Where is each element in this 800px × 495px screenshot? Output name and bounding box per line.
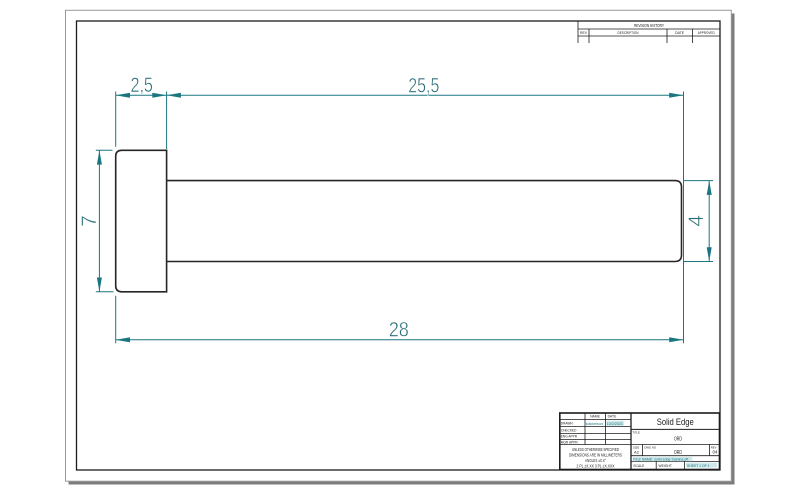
svg-text:kdickerson: kdickerson <box>586 422 603 426</box>
svg-text:ORD: ORD <box>674 450 682 456</box>
svg-text:UNLESS OTHERWISE SPECIFIED: UNLESS OTHERWISE SPECIFIED <box>572 447 619 452</box>
svg-text:DWG NO: DWG NO <box>644 446 657 450</box>
svg-text:A2: A2 <box>634 450 640 455</box>
svg-text:REVISION HISTORY: REVISION HISTORY <box>634 23 664 28</box>
svg-text:DATE: DATE <box>608 415 618 419</box>
svg-text:SHEET 1 OF 1: SHEET 1 OF 1 <box>687 464 710 468</box>
svg-text:25,5: 25,5 <box>408 74 439 97</box>
svg-text:SCALE: SCALE <box>633 464 645 468</box>
svg-text:REV: REV <box>580 30 587 35</box>
svg-text:2,5: 2,5 <box>130 74 153 97</box>
svg-text:ORD: ORD <box>674 437 682 443</box>
svg-text:MGR APPR: MGR APPR <box>561 440 579 444</box>
svg-text:28: 28 <box>389 319 409 342</box>
svg-text:7: 7 <box>78 215 101 227</box>
svg-text:DIMENSIONS ARE IN MILLIMETERS: DIMENSIONS ARE IN MILLIMETERS <box>569 453 622 458</box>
svg-text:DRAWN: DRAWN <box>561 422 574 426</box>
svg-text:TITLE: TITLE <box>632 431 640 435</box>
svg-text:NAME: NAME <box>590 415 601 419</box>
svg-text:04: 04 <box>713 450 718 455</box>
svg-text:4: 4 <box>685 215 708 227</box>
svg-text:FILE NAME: solid edge training: FILE NAME: solid edge training.dft <box>633 457 688 461</box>
svg-text:ANGLES ±X.X°: ANGLES ±X.X° <box>585 458 606 463</box>
svg-text:Solid Edge: Solid Edge <box>657 417 694 427</box>
svg-text:WEIGHT: WEIGHT <box>658 464 672 468</box>
svg-text:APPROVED: APPROVED <box>698 30 715 35</box>
svg-text:10/2/2023: 10/2/2023 <box>607 422 623 426</box>
svg-text:ENG APPR: ENG APPR <box>561 435 578 439</box>
svg-text:DATE: DATE <box>675 30 684 35</box>
svg-text:CHECKED: CHECKED <box>561 429 577 433</box>
svg-text:DESCRIPTION: DESCRIPTION <box>618 30 639 35</box>
svg-text:2 PL ±X.XX 3 PL ±X.XXX: 2 PL ±X.XX 3 PL ±X.XXX <box>577 464 615 469</box>
